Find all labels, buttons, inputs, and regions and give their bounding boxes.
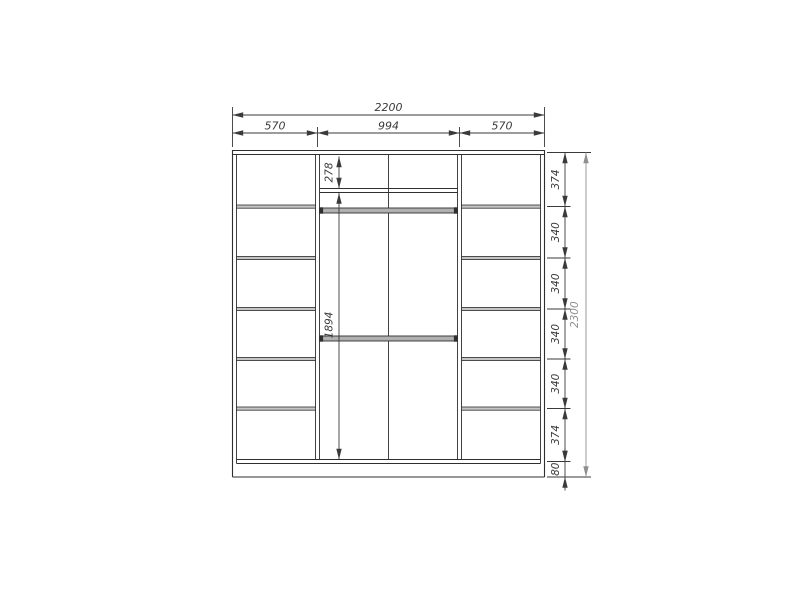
right-shelf-4: [462, 357, 541, 360]
top-dimension-labels: 2200 570 994 570: [265, 101, 513, 133]
dim-height-seg-2: 340: [550, 222, 562, 242]
left-shelf-4: [237, 357, 316, 360]
partition-right: [458, 155, 462, 460]
rod-upper-left-cap: [320, 207, 324, 213]
dim-height-seg-5: 340: [550, 373, 562, 393]
dim-width-middle: 994: [378, 120, 399, 133]
hanging-rod-lower: [320, 336, 458, 341]
left-shelf-1: [237, 205, 316, 208]
right-shelf-3: [462, 307, 541, 310]
right-dimension-labels: 374 340 340 340 340 374 80 2300: [550, 169, 581, 475]
dim-height-seg-1: 374: [550, 169, 562, 189]
dim-height-seg-7: 80: [550, 462, 562, 476]
left-column-shelves: [237, 205, 316, 410]
cabinet-carcass: [233, 150, 545, 477]
left-shelf-3: [237, 307, 316, 310]
right-column-shelves: [462, 205, 541, 410]
dim-interior-top-shelf: 278: [324, 162, 336, 182]
right-shelf-5: [462, 407, 541, 410]
rod-upper-right-cap: [454, 207, 458, 213]
dim-height-seg-6: 374: [550, 425, 562, 445]
dim-height-seg-4: 340: [550, 324, 562, 344]
right-shelf-1: [462, 205, 541, 208]
dim-height-seg-3: 340: [550, 273, 562, 293]
partition-left: [316, 155, 320, 460]
dim-width-total: 2200: [375, 101, 403, 114]
dim-height-total: 2300: [569, 301, 581, 328]
drawing-canvas: 2200 570 994 570 374 340 340 340 340 374…: [0, 0, 800, 600]
wardrobe-technical-drawing: 2200 570 994 570 374 340 340 340 340 374…: [0, 0, 800, 600]
hanging-rod-upper: [320, 208, 458, 213]
dim-width-right: 570: [492, 120, 513, 133]
right-shelf-2: [462, 256, 541, 259]
left-shelf-2: [237, 256, 316, 259]
dim-interior-hanging: 1894: [324, 312, 336, 339]
dim-width-left: 570: [265, 120, 286, 133]
rod-lower-right-cap: [454, 335, 458, 341]
left-shelf-5: [237, 407, 316, 410]
